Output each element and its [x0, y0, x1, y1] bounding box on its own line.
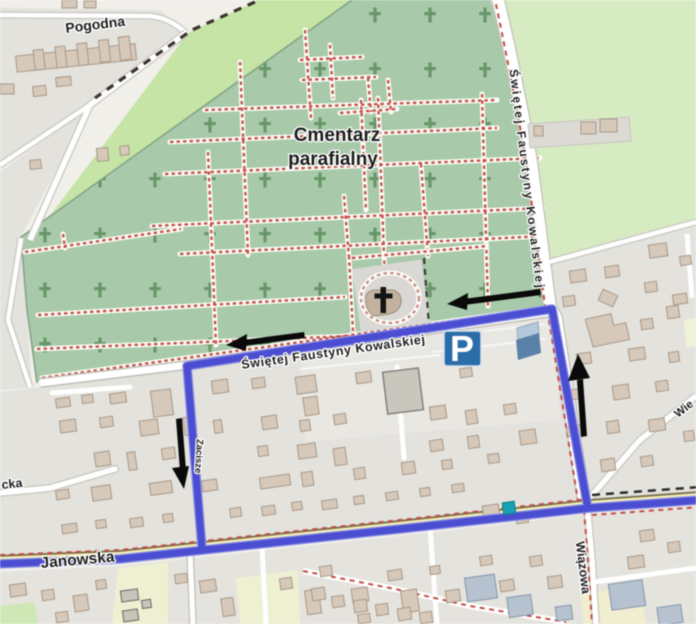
svg-text:Zacisze: Zacisze: [192, 439, 205, 474]
svg-text:P: P: [450, 328, 474, 369]
svg-text:cka: cka: [1, 476, 24, 492]
svg-text:parafialny: parafialny: [288, 149, 378, 170]
svg-text:Cmentarz: Cmentarz: [294, 125, 381, 146]
